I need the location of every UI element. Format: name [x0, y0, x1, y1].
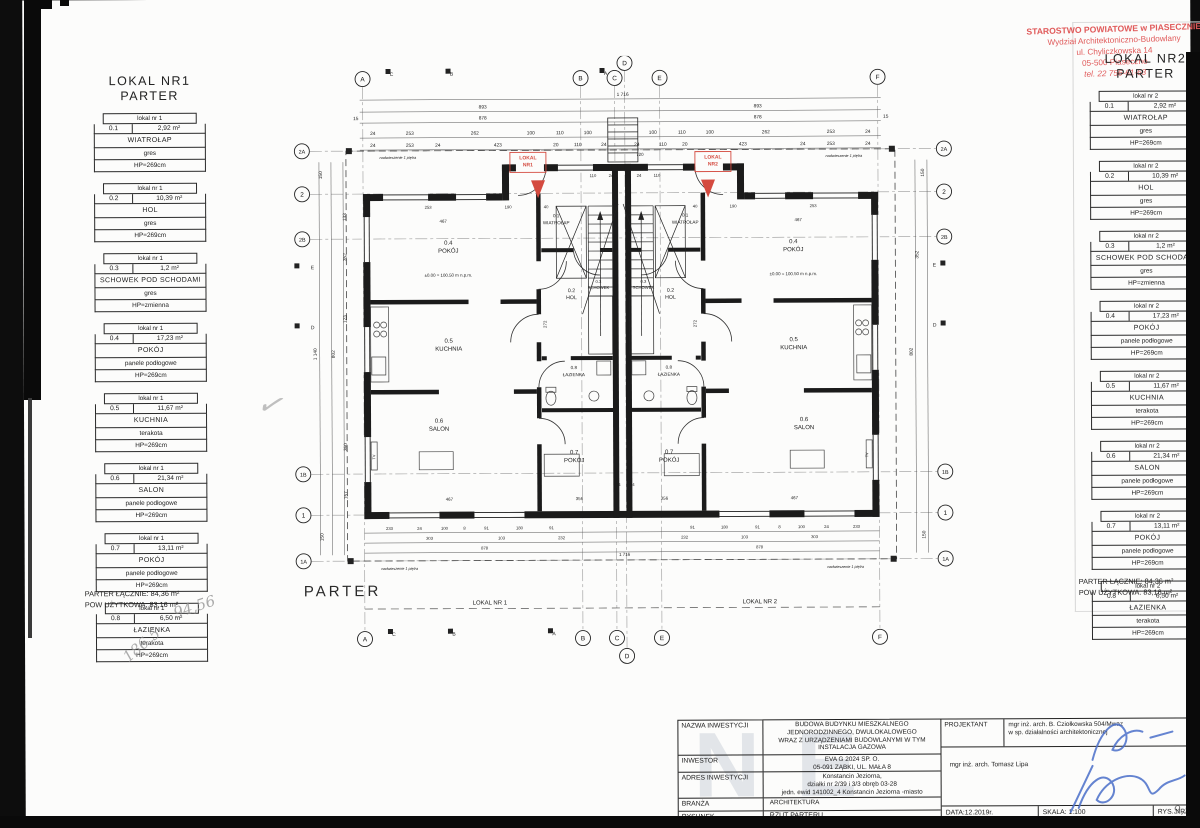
plan-label: 150 — [318, 171, 324, 179]
room-card: lokal nr 20.31,2 m²SCHOWEK POD SCHODAMIg… — [1090, 230, 1200, 289]
plan-label: LOKAL NR 1 — [473, 600, 508, 606]
legend-lokal-nr1: LOKAL NR1 PARTER lokal nr 10.12,92 m²WIA… — [91, 74, 212, 674]
plan-label: 24 — [417, 526, 422, 531]
room-number: 0.3 — [95, 264, 133, 273]
room-card-header: lokal nr 1 — [103, 113, 197, 124]
plan-label: 0.1 — [682, 213, 689, 218]
plan-label: 15 — [883, 114, 889, 120]
room-number: 0.7 — [97, 544, 135, 553]
scan-edge-right — [1186, 52, 1200, 828]
plan-label: 467 — [795, 217, 803, 222]
plan-label: 0.4 — [444, 241, 453, 247]
axis-bubble-label: 1A — [300, 560, 307, 566]
plan-label: SALON — [429, 427, 449, 433]
axis-bubble-label: 1B — [300, 473, 307, 479]
walls — [363, 163, 880, 519]
room-floor-finish: terakota — [95, 428, 207, 440]
window-openings — [361, 161, 881, 520]
room-card: lokal nr 10.12,92 m²WIATROŁAPgresHP=269c… — [94, 113, 206, 172]
plan-label: 190 — [505, 204, 513, 209]
plan-label: 24 — [824, 524, 829, 529]
plan-label: nadwieszenie 1 piętra — [380, 156, 417, 160]
plan-label: 100 — [649, 130, 657, 136]
axis-bubble-label: F — [876, 74, 880, 81]
room-clear-height: HP=269cm — [1091, 347, 1200, 359]
plan-label: 110 — [654, 173, 661, 178]
plan-label: 91 — [549, 525, 554, 530]
plan-label: 0.6 — [435, 419, 444, 425]
plan-label: 0.1 — [553, 213, 560, 218]
axis-bubble-label: E — [657, 75, 661, 82]
room-card-header: lokal nr 1 — [104, 463, 198, 474]
plan-label: nadwieszenie 1 piętra — [827, 565, 864, 569]
plan-label: 1 716 — [617, 92, 629, 98]
plan-label: WIATROŁAP — [543, 220, 570, 225]
inwestor-label: INWESTOR — [679, 755, 764, 771]
plan-label: 262 — [471, 131, 479, 137]
plan-label: 272 — [543, 320, 548, 328]
plan-label: 24 — [435, 143, 441, 149]
plan-label: WIATROŁAP — [672, 220, 699, 225]
axis-bubble-label: 2 — [942, 189, 946, 196]
branza-value: ARCHITEKTURA — [764, 798, 941, 811]
plan-label: 253 — [827, 141, 835, 147]
plan-label: 91 — [755, 524, 760, 529]
room-clear-height: HP=269cm — [1090, 207, 1200, 219]
plan-label: 180 — [721, 524, 729, 529]
room-card-area-row: 0.210,39 m² — [1090, 171, 1200, 181]
legend-right-room-tables: lokal nr 20.12,92 m²WIATROŁAPgresHP=269c… — [1087, 90, 1200, 640]
plan-label: 24 — [865, 141, 871, 147]
room-clear-height: HP=269cm — [1092, 627, 1200, 639]
plan-label: 0.8 — [666, 365, 673, 370]
plan-label: 24 — [637, 173, 642, 178]
room-number: 0.5 — [96, 404, 134, 413]
plan-label: TV — [372, 454, 376, 459]
axis-bubble-label: 1A — [942, 557, 949, 563]
room-clear-height: HP=269cm — [96, 650, 208, 662]
room-number: 0.6 — [1092, 452, 1130, 461]
plan-label: 253 — [827, 129, 835, 135]
plan-label: 24 — [865, 129, 871, 135]
axis-bubble-label: 2A — [299, 150, 306, 156]
nazwa-value: BUDOWA BUDYNKU MIESZKALNEGO JEDNORODZINN… — [763, 720, 940, 755]
plan-label: 356 — [661, 496, 669, 501]
room-name: ŁAZIENKA — [1092, 601, 1200, 615]
room-clear-height: HP=zmienna — [95, 300, 207, 312]
room-number: 0.2 — [1091, 172, 1129, 181]
room-card-header: lokal nr 2 — [1099, 160, 1193, 171]
plan-label: 123 — [343, 315, 349, 323]
pencil-checkmark: ✓ — [254, 385, 286, 424]
room-number: 0.7 — [1092, 522, 1130, 531]
plan-label: 91 — [484, 526, 489, 531]
scanned-drawing-sheet: LOKAL NR1 PARTER lokal nr 10.12,92 m²WIA… — [22, 0, 1194, 823]
room-card: lokal nr 10.713,11 m²POKÓJpanele podłogo… — [96, 533, 208, 592]
room-name: POKÓJ — [96, 554, 208, 568]
plan-label: ŁAZIENKA — [563, 372, 586, 377]
room-name: SCHOWEK POD SCHODAMI — [94, 274, 206, 288]
room-name: POKÓJ — [1092, 531, 1200, 545]
room-area: 2,92 m² — [133, 124, 205, 133]
room-name: WIATROŁAP — [1090, 111, 1200, 125]
furniture — [371, 305, 873, 477]
plan-label: POKÓJ — [659, 457, 679, 464]
room-card-header: lokal nr 1 — [103, 183, 197, 194]
plan-label: 110 — [678, 130, 686, 136]
scan-edge-left-thin — [28, 398, 32, 638]
plan-label: SALON — [794, 425, 814, 431]
unit-split-line — [365, 607, 880, 609]
plan-label: 24 — [630, 482, 635, 487]
adres-value: Konstancin Jeziorna, działki nr 2/39 i 3… — [764, 772, 941, 798]
room-floor-finish: gres — [94, 218, 206, 230]
legend-lokal-nr2: LOKAL NR2 PARTER lokal nr 20.12,92 m²WIA… — [1086, 51, 1200, 651]
plan-label: 0.5 — [445, 339, 454, 345]
signature-1 — [1092, 724, 1172, 760]
plan-label: 110 — [556, 130, 564, 136]
plan-label: 253 — [406, 131, 414, 137]
axis-bubble-label: 2A — [941, 147, 948, 153]
plan-label: 0.3 — [596, 279, 603, 284]
plan-label: 8 — [778, 524, 781, 529]
room-card-header: lokal nr 2 — [1101, 510, 1195, 521]
room-number: 0.3 — [1091, 242, 1129, 251]
axis-bubble-label: 1B — [942, 470, 949, 476]
room-clear-height: HP=269cm — [1090, 137, 1200, 149]
scan-mark-topleft — [28, 0, 52, 9]
plan-label: C — [390, 72, 394, 78]
room-card-area-row: 0.511,67 m² — [1091, 381, 1200, 391]
room-card-area-row: 0.12,92 m² — [1090, 101, 1200, 111]
room-card: lokal nr 20.417,23 m²POKÓJpanele podłogo… — [1091, 300, 1200, 359]
plan-label: 878 — [754, 114, 762, 120]
plan-label: 802 — [331, 350, 337, 358]
plan-label: 103 — [741, 534, 749, 539]
plan-label: 0.4 — [789, 239, 798, 245]
plan-label: 1 716 — [619, 552, 631, 557]
plan-label: 100 — [441, 526, 449, 531]
plan-label: 20 — [553, 142, 559, 148]
room-name: WIATROŁAP — [94, 134, 206, 148]
nazwa-label: NAZWA INWESTYCJI — [678, 720, 763, 754]
room-clear-height: HP=269cm — [1091, 487, 1200, 499]
room-name: KUCHNIA — [95, 414, 207, 428]
plan-label: 24 — [800, 141, 806, 147]
room-card: lokal nr 10.210,39 m²HOLgresHP=269cm — [94, 183, 206, 242]
axis-bubble-label: C — [612, 75, 617, 82]
room-area: 10,39 m² — [133, 194, 205, 203]
plan-label: 24 — [616, 482, 621, 487]
room-clear-height: HP=269cm — [95, 370, 207, 382]
room-area: 17,23 m² — [134, 334, 206, 343]
axis-bubble-label: B — [578, 75, 582, 82]
room-floor-finish: panele podłogowe — [96, 568, 208, 580]
plan-label: HOL — [665, 295, 676, 301]
axis-bubble-label: 2 — [300, 192, 304, 199]
signatures — [1000, 707, 1200, 820]
room-floor-finish: terakota — [1092, 615, 1200, 627]
plan-label: 352 — [914, 250, 920, 258]
plan-label: 8 — [463, 526, 466, 531]
plan-label: 272 — [693, 319, 698, 327]
room-clear-height: HP=269cm — [94, 230, 206, 242]
room-floor-finish: gres — [1090, 125, 1200, 137]
plan-label: 24 — [370, 143, 376, 149]
plan-label: 233 — [853, 524, 861, 529]
room-floor-finish: panele podłogowe — [1091, 335, 1200, 347]
plan-label: 352 — [342, 253, 348, 261]
plan-label: 232 — [558, 535, 566, 540]
room-area: 11,67 m² — [134, 404, 206, 413]
legend-left-title: LOKAL NR1 PARTER — [91, 74, 209, 105]
room-card-header: lokal nr 1 — [103, 253, 197, 264]
plan-label: POKÓJ — [564, 457, 584, 464]
lokal-entrance-markers — [510, 151, 731, 198]
room-card-area-row: 0.621,34 m² — [95, 474, 207, 484]
room-card: lokal nr 10.511,67 m²KUCHNIAterakotaHP=2… — [95, 393, 207, 452]
scan-edge-left — [24, 0, 41, 400]
entry-steps — [608, 118, 638, 162]
plan-label: 423 — [494, 142, 502, 148]
overhang-dashed-outline — [346, 149, 897, 561]
plan-label: 802 — [909, 347, 915, 355]
plan-label: 0.2 — [568, 288, 575, 294]
axis-bubble-label: 1 — [302, 513, 306, 520]
room-floor-finish: panele podłogowe — [95, 358, 207, 370]
room-floor-finish: panele podłogowe — [1091, 475, 1200, 487]
room-area: 21,34 m² — [135, 474, 207, 483]
plan-label: 253 — [425, 205, 433, 210]
plan-label: B — [450, 72, 454, 78]
plan-label: 110 — [659, 142, 667, 148]
plan-label: E — [933, 263, 937, 269]
plan-label: HOL — [566, 295, 577, 301]
plan-label: 720 — [636, 152, 644, 157]
signature-2 — [1071, 765, 1185, 811]
plan-label: 150 — [922, 530, 928, 538]
plan-label: 15 — [353, 116, 359, 122]
room-clear-height: HP=269cm — [95, 440, 207, 452]
plan-label: 0.5 — [790, 337, 799, 343]
plan-label: 0.7 — [665, 450, 674, 456]
plan-label: LOKAL — [704, 155, 721, 161]
plan-label: 150 — [320, 533, 326, 541]
plan-label: D — [311, 325, 315, 331]
room-floor-finish: panele podłogowe — [1092, 545, 1200, 557]
plan-label: 110 — [590, 173, 597, 178]
room-card: lokal nr 10.621,34 m²SALONpanele podłogo… — [95, 463, 207, 522]
plan-label: 0.2 — [667, 288, 674, 294]
plan-label: 103 — [498, 535, 506, 540]
room-clear-height: HP=269cm — [1092, 557, 1200, 569]
plan-label: SCHOWEK — [588, 285, 610, 290]
inwestor-value: EVA G 2024 SP. O. 05-091 ZĄBKI, UL. MAŁA… — [764, 755, 941, 772]
axis-bubble-label: 1 — [944, 510, 948, 517]
plan-label: SCHOWEK — [633, 285, 655, 290]
plan-label: 467 — [791, 495, 799, 500]
plan-label: 40 — [544, 204, 549, 209]
plan-label: 893 — [754, 103, 762, 109]
plan-label: ±0.00 = 100.50 m n.p.m. — [770, 271, 818, 276]
room-card-header: lokal nr 2 — [1099, 230, 1193, 241]
room-card-area-row: 0.713,11 m² — [1091, 521, 1200, 531]
axis-bubble-label: 2B — [299, 238, 306, 244]
plan-label: 0.8 — [571, 365, 578, 370]
room-name: KUCHNIA — [1091, 391, 1200, 405]
plan-label: 100 — [584, 130, 592, 136]
plan-label: 157 — [343, 491, 349, 499]
branza-label: BRANŻA — [679, 798, 764, 810]
room-clear-height: HP=zmienna — [1090, 277, 1200, 289]
room-card-header: lokal nr 2 — [1100, 370, 1194, 381]
plan-label: E — [311, 265, 315, 271]
room-name: POKÓJ — [95, 344, 207, 358]
plan-label: ŁAZIENKA — [658, 372, 681, 377]
axis-bubble-label: 2B — [941, 235, 948, 241]
room-card-area-row: 0.417,23 m² — [1091, 311, 1200, 321]
plan-label: 40 — [693, 204, 698, 209]
plan-label: 100 — [706, 130, 714, 136]
scan-mark-topleft-2 — [60, 0, 69, 6]
room-floor-finish: gres — [94, 288, 206, 300]
room-card-area-row: 0.713,11 m² — [96, 544, 208, 554]
axis-bubble-label: D — [622, 60, 627, 67]
room-card-header: lokal nr 2 — [1100, 440, 1194, 451]
room-name: SALON — [1091, 461, 1200, 475]
axis-bubble-label: A — [360, 76, 365, 83]
room-card-area-row: 0.511,67 m² — [95, 404, 207, 414]
axis-bubble-label: E — [660, 635, 664, 642]
section-flag — [940, 261, 945, 266]
room-name: HOL — [1090, 181, 1200, 195]
plan-label: 878 — [756, 544, 764, 549]
room-card-area-row: 0.417,23 m² — [95, 334, 207, 344]
room-card-area-row: 0.621,34 m² — [1091, 451, 1200, 461]
room-number: 0.8 — [1093, 592, 1131, 601]
plan-label: 423 — [739, 141, 747, 147]
room-clear-height: HP=269cm — [94, 160, 206, 172]
section-flag — [295, 323, 300, 328]
plan-label: 0.3 — [641, 279, 648, 284]
plan-label: 878 — [479, 116, 487, 122]
room-number: 0.1 — [95, 124, 133, 133]
plan-label: KUCHNIA — [780, 345, 807, 351]
room-card-area-row: 0.31,2 m² — [1090, 241, 1200, 251]
plan-label: 1 140 — [313, 348, 319, 360]
plan-label: 100 — [527, 130, 535, 136]
room-card: lokal nr 20.210,39 m²HOLgresHP=269cm — [1090, 160, 1200, 219]
room-card: lokal nr 10.31,2 m²SCHOWEK POD SCHODAMIg… — [94, 253, 206, 312]
room-floor-finish: gres — [1090, 195, 1200, 207]
floor-plan: ABCDEFABCDEF2A22B1B11A2A22B1B11A 0.4POKÓ… — [287, 54, 960, 669]
legend-left-totals: PARTER ŁĄCZNIE: 84,36 m² POW UŻYTKOWA: 8… — [85, 588, 180, 610]
room-card-area-row: 0.86,50 m² — [1092, 591, 1200, 601]
room-number: 0.4 — [1092, 312, 1130, 321]
room-card-header: lokal nr 1 — [104, 323, 198, 334]
room-clear-height: HP=269cm — [95, 510, 207, 522]
room-card: lokal nr 20.86,50 m²ŁAZIENKAterakotaHP=2… — [1092, 580, 1200, 639]
plan-label: 24 — [601, 142, 607, 148]
room-number: 0.2 — [95, 194, 133, 203]
plan-label: LOKAL — [519, 155, 536, 161]
plan-label: POKÓJ — [783, 246, 803, 253]
room-card-area-row: 0.210,39 m² — [94, 194, 206, 204]
plan-label: 233 — [386, 526, 394, 531]
section-flag — [941, 321, 946, 326]
room-number: 0.5 — [1092, 382, 1130, 391]
plan-label: 467 — [440, 219, 448, 224]
room-name: SALON — [95, 484, 207, 498]
plan-label: 253 — [406, 143, 414, 149]
plan-label: 110 — [574, 142, 582, 148]
legend-right-title: LOKAL NR2 PARTER — [1086, 51, 1200, 82]
room-card-area-row: 0.12,92 m² — [94, 124, 206, 134]
room-floor-finish: panele podłogowe — [95, 498, 207, 510]
plan-label: A — [552, 631, 556, 637]
plan-label: D — [933, 323, 937, 329]
legend-left-room-tables: lokal nr 10.12,92 m²WIATROŁAPgresHP=269c… — [91, 113, 211, 663]
plan-label: ±0.00 = 100.50 m n.p.m. — [425, 273, 473, 278]
room-floor-finish: terakota — [1091, 405, 1200, 417]
stair-direction-arrows — [597, 211, 644, 220]
room-card-header: lokal nr 2 — [1101, 580, 1195, 591]
plan-label: 133 — [342, 213, 348, 221]
axis-bubble-label: D — [625, 653, 630, 660]
room-number: 0.1 — [1091, 102, 1129, 111]
plan-label: NR1 — [523, 162, 533, 168]
room-card: lokal nr 20.621,34 m²SALONpanele podłogo… — [1091, 440, 1200, 499]
room-clear-height: HP=269cm — [1091, 417, 1200, 429]
plan-label: 190 — [730, 203, 738, 208]
plan-label: nadwieszenie 1 piętra — [381, 567, 418, 571]
room-card-area-row: 0.31,2 m² — [94, 264, 206, 274]
plan-label: 303 — [426, 536, 434, 541]
plan-label: 0.6 — [800, 417, 809, 423]
plan-label: 24 — [634, 142, 640, 148]
plan-label: 20 — [682, 142, 688, 148]
room-area: 1,2 m² — [134, 264, 206, 273]
plan-label: NR2 — [708, 162, 718, 168]
room-name: POKÓJ — [1091, 321, 1200, 335]
adres-label: ADRES INWESTYCJI — [679, 772, 764, 797]
staircase — [556, 204, 686, 355]
axis-bubble-label: A — [363, 636, 368, 643]
room-name: HOL — [94, 204, 206, 218]
parter-title: PARTER — [304, 583, 382, 600]
plan-label: 467 — [446, 497, 454, 502]
plan-label: B — [452, 632, 456, 638]
plan-label: 24 — [609, 173, 614, 178]
section-flag — [294, 263, 299, 268]
plan-label: C — [392, 632, 396, 638]
axis-bubble-label: F — [878, 634, 882, 641]
plan-label: 893 — [479, 105, 487, 111]
plan-label: 360 — [343, 443, 349, 451]
plan-label: 24 — [370, 131, 376, 137]
room-card: lokal nr 10.417,23 m²POKÓJpanele podłogo… — [95, 323, 207, 382]
plan-label: nadwieszenie 1 piętra — [826, 154, 863, 158]
section-flags — [294, 67, 947, 635]
axis-bubble-label: C — [615, 635, 620, 642]
plan-label: 180 — [516, 525, 524, 530]
plan-label: 0.7 — [570, 450, 579, 456]
room-number: 0.8 — [97, 614, 135, 623]
plan-label: LOKAL NR 2 — [743, 599, 778, 605]
room-card-header: lokal nr 2 — [1100, 300, 1194, 311]
scan-edge-bottom — [0, 816, 1200, 828]
room-card: lokal nr 20.12,92 m²WIATROŁAPgresHP=269c… — [1090, 90, 1200, 149]
